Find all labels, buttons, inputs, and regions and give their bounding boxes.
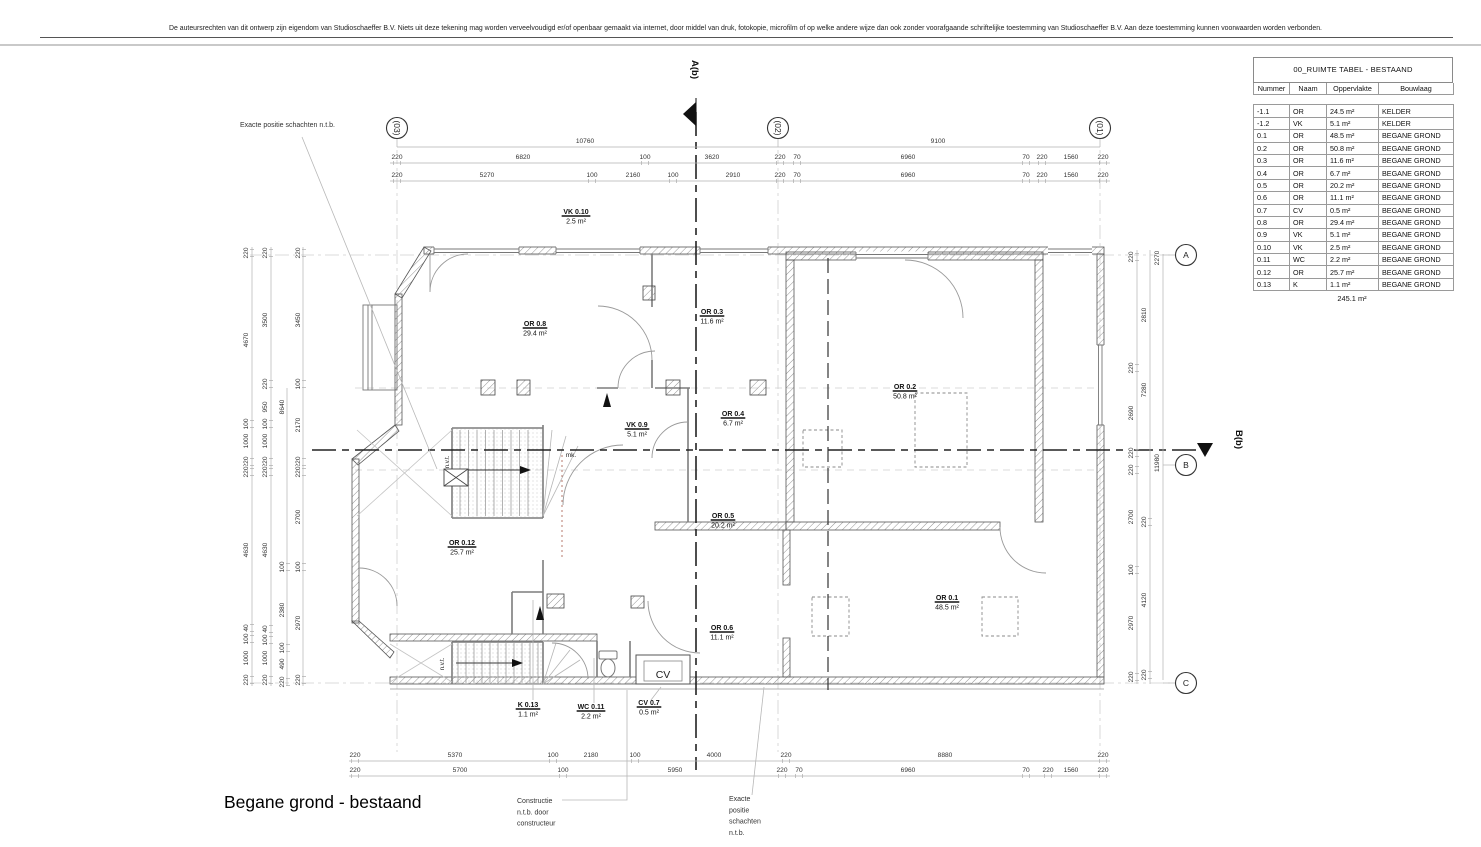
section-lines — [312, 112, 1205, 770]
annotation-line: positie — [729, 807, 749, 814]
dimension-label: 6820 — [516, 154, 531, 161]
dimension-label: 220 — [1128, 464, 1135, 475]
annotation-line: Exacte — [729, 796, 751, 803]
room-area-label: 6.7 m² — [723, 421, 744, 428]
dimension-label: 220 — [1036, 154, 1047, 161]
dimension-label: 220 — [295, 466, 302, 477]
table-cell: 0.1 — [1254, 130, 1290, 142]
table-cell: 2.2 m² — [1327, 254, 1379, 266]
table-cell: 29.4 m² — [1327, 216, 1379, 228]
table-row: 0.1OR48.5 m²BEGANE GROND — [1254, 130, 1454, 142]
table-cell: BEGANE GROND — [1379, 179, 1454, 191]
dimension-label: 220 — [262, 247, 269, 258]
windows — [363, 247, 1105, 426]
table-cell: BEGANE GROND — [1379, 130, 1454, 142]
table-cell: 0.13 — [1254, 278, 1290, 290]
column-header: Nummer — [1254, 83, 1290, 95]
dimension-label: 220 — [1128, 251, 1135, 262]
room-area-label: 2.2 m² — [581, 714, 602, 721]
dimension-label: 6960 — [901, 172, 916, 179]
table-cell: 0.9 — [1254, 229, 1290, 241]
dimension-label: 1000 — [262, 433, 269, 448]
dimension-label: 5700 — [453, 767, 468, 774]
dimension-label: 6960 — [901, 154, 916, 161]
table-row: 0.11WC2.2 m²BEGANE GROND — [1254, 254, 1454, 266]
room-name-label: K 0.13 — [518, 702, 539, 709]
table-cell: 50.8 m² — [1327, 142, 1379, 154]
table-row: 0.10VK2.5 m²BEGANE GROND — [1254, 241, 1454, 253]
dimension-label: 4670 — [243, 332, 250, 347]
dimension-label: 100 — [262, 634, 269, 645]
table-cell: 0.11 — [1254, 254, 1290, 266]
dimension-label: 2970 — [295, 615, 302, 630]
room-name-label: OR 0.6 — [711, 625, 733, 632]
dimension-label: 220 — [243, 466, 250, 477]
dimension-label: 220 — [780, 752, 791, 759]
dimension-label: 220 — [1097, 172, 1108, 179]
room-area-label: 11.1 m² — [710, 635, 734, 642]
dimension-label: 6960 — [901, 767, 916, 774]
room-name-label: OR 0.4 — [722, 411, 744, 418]
dimension-label: 5270 — [480, 172, 495, 179]
table-cell: 0.5 m² — [1327, 204, 1379, 216]
dimension-label: 220 — [391, 172, 402, 179]
grid-marker-label: (01) — [1095, 120, 1105, 135]
table-cell: BEGANE GROND — [1379, 192, 1454, 204]
dimension-label: 4000 — [707, 752, 722, 759]
dimension-label: 220 — [243, 247, 250, 258]
dimension-label: 1000 — [243, 650, 250, 665]
column-header: Oppervlakte — [1327, 83, 1379, 95]
plan-text: mk. — [566, 452, 577, 459]
table-cell: 24.5 m² — [1327, 105, 1379, 117]
dimension-label: 5950 — [668, 767, 683, 774]
plan-text: n.v.t. — [445, 455, 451, 468]
table-cell: BEGANE GROND — [1379, 241, 1454, 253]
table-cell: VK — [1290, 229, 1327, 241]
grid-lines — [250, 150, 1170, 752]
dimension-label: 70 — [1022, 154, 1030, 161]
dimension-label: 2170 — [295, 417, 302, 432]
table-cell: BEGANE GROND — [1379, 204, 1454, 216]
room-table-header: NummerNaamOppervlakteBouwlaag — [1253, 83, 1454, 95]
room-name-label: OR 0.5 — [712, 513, 734, 520]
dimension-label: 950 — [262, 401, 269, 412]
table-cell: BEGANE GROND — [1379, 154, 1454, 166]
dimension-label: 10760 — [576, 138, 595, 145]
dimension-label: 220 — [776, 767, 787, 774]
annotation-line: constructeur — [517, 821, 556, 828]
table-cell: 0.3 — [1254, 154, 1290, 166]
dimension-label: 100 — [279, 642, 286, 653]
dimension-label: 9100 — [931, 138, 946, 145]
dimension-label: 220 — [1036, 172, 1047, 179]
room-area-label: 48.5 m² — [935, 605, 959, 612]
table-cell: 0.10 — [1254, 241, 1290, 253]
grid-marker-label: A — [1183, 250, 1189, 260]
dimension-label: 100 — [667, 172, 678, 179]
table-cell: WC — [1290, 254, 1327, 266]
dimension-label: 490 — [279, 658, 286, 669]
table-cell: 0.5 — [1254, 179, 1290, 191]
dimension-label: 220 — [1128, 447, 1135, 458]
dimension-label: 100 — [557, 767, 568, 774]
dimension-label: 220 — [1128, 362, 1135, 373]
plan-text: n.v.t. — [440, 657, 446, 670]
table-cell: BEGANE GROND — [1379, 216, 1454, 228]
dimension-label: 100 — [547, 752, 558, 759]
table-cell: 0.12 — [1254, 266, 1290, 278]
room-name-label: OR 0.12 — [449, 540, 475, 547]
table-cell: -1.2 — [1254, 117, 1290, 129]
dimension-label: 4630 — [243, 542, 250, 557]
room-area-label: 50.8 m² — [893, 394, 917, 401]
table-cell: 5.1 m² — [1327, 229, 1379, 241]
room-name-label: CV 0.7 — [638, 700, 660, 707]
section-label: A(b) — [689, 60, 700, 79]
table-cell: CV — [1290, 204, 1327, 216]
room-area-label: 29.4 m² — [523, 331, 547, 338]
room-area-label: 20.2 m² — [711, 523, 735, 530]
room-table: 00_RUIMTE TABEL - BESTAAND NummerNaamOpp… — [1253, 57, 1453, 303]
dimension-label: 2160 — [626, 172, 641, 179]
table-cell: OR — [1290, 192, 1327, 204]
dimension-label: 11980 — [1154, 454, 1161, 472]
dimension-label: 220 — [1097, 154, 1108, 161]
table-cell: BEGANE GROND — [1379, 167, 1454, 179]
drawing-sheet: De auteursrechten van dit ontwerp zijn e… — [0, 0, 1481, 847]
annotation-line: Constructie — [517, 798, 553, 805]
dimension-label: 100 — [243, 633, 250, 644]
room-area-label: 11.6 m² — [700, 319, 724, 326]
dimension-label: 100 — [279, 561, 286, 572]
dimension-label: 220 — [262, 456, 269, 467]
annotation-line: n.t.b. door — [517, 809, 549, 816]
room-area-label: 0.5 m² — [639, 710, 660, 717]
winder-treads — [543, 430, 578, 516]
table-cell: BEGANE GROND — [1379, 142, 1454, 154]
dimension-label: 3450 — [295, 312, 302, 327]
dimension-label: 3620 — [705, 154, 720, 161]
dimension-label: 220 — [1128, 671, 1135, 682]
table-cell: KELDER — [1379, 117, 1454, 129]
table-cell: VK — [1290, 117, 1327, 129]
table-cell: OR — [1290, 266, 1327, 278]
dimension-label: 220 — [391, 154, 402, 161]
dimension-label: 2700 — [295, 509, 302, 524]
annotation-line: n.t.b. — [729, 830, 745, 837]
room-area-label: 2.5 m² — [566, 219, 587, 226]
table-row: 0.8OR29.4 m²BEGANE GROND — [1254, 216, 1454, 228]
room-name-label: OR 0.1 — [936, 595, 958, 602]
table-row: -1.1OR24.5 m²KELDER — [1254, 105, 1454, 117]
dimension-label: 220 — [243, 456, 250, 467]
table-cell: 1.1 m² — [1327, 278, 1379, 290]
dimension-label: 5370 — [448, 752, 463, 759]
dimension-label: 220 — [1097, 767, 1108, 774]
table-row: 0.6OR11.1 m²BEGANE GROND — [1254, 192, 1454, 204]
room-table-title: 00_RUIMTE TABEL - BESTAAND — [1253, 57, 1453, 83]
dimension-label: 100 — [295, 378, 302, 389]
void-cross — [357, 430, 452, 682]
dimension-label: 220 — [1042, 767, 1053, 774]
table-cell: BEGANE GROND — [1379, 278, 1454, 290]
table-cell: 25.7 m² — [1327, 266, 1379, 278]
table-cell: 6.7 m² — [1327, 167, 1379, 179]
table-cell: OR — [1290, 179, 1327, 191]
room-name-label: WC 0.11 — [578, 704, 605, 711]
table-cell: 0.8 — [1254, 216, 1290, 228]
table-row: 0.3OR11.6 m²BEGANE GROND — [1254, 154, 1454, 166]
dimension-label: 1560 — [1064, 154, 1079, 161]
dimension-label: 2970 — [1128, 615, 1135, 630]
room-name-label: OR 0.3 — [701, 309, 723, 316]
drawing-title: Begane grond - bestaand — [224, 792, 422, 813]
dimension-label: 70 — [793, 172, 801, 179]
dimension-label: 1560 — [1064, 767, 1079, 774]
dimension-label: 1000 — [243, 433, 250, 448]
dimension-label: 220 — [349, 752, 360, 759]
dimension-label: 40 — [243, 624, 250, 632]
table-row: 0.13K1.1 m²BEGANE GROND — [1254, 278, 1454, 290]
table-cell: 0.2 — [1254, 142, 1290, 154]
table-row: 0.9VK5.1 m²BEGANE GROND — [1254, 229, 1454, 241]
room-name-label: OR 0.2 — [894, 384, 916, 391]
dimension-label: 220 — [243, 674, 250, 685]
table-cell: OR — [1290, 130, 1327, 142]
table-cell: OR — [1290, 216, 1327, 228]
dimension-label: 100 — [262, 418, 269, 429]
column-header: Bouwlaag — [1379, 83, 1454, 95]
table-cell: OR — [1290, 167, 1327, 179]
table-row: 0.2OR50.8 m²BEGANE GROND — [1254, 142, 1454, 154]
table-cell: -1.1 — [1254, 105, 1290, 117]
table-cell: 0.6 — [1254, 192, 1290, 204]
column-header: Naam — [1290, 83, 1327, 95]
toilet-symbol — [599, 651, 617, 677]
dimension-label: 100 — [243, 418, 250, 429]
room-name-label: VK 0.9 — [626, 422, 648, 429]
table-cell: 48.5 m² — [1327, 130, 1379, 142]
table-cell: OR — [1290, 142, 1327, 154]
dimension-label: 220 — [295, 674, 302, 685]
dimension-label: 2690 — [1128, 405, 1135, 420]
grid-marker-label: (03) — [392, 120, 402, 135]
dimension-label: 220 — [774, 154, 785, 161]
room-name-label: OR 0.8 — [524, 321, 546, 328]
dimension-label: 70 — [1022, 172, 1030, 179]
dimension-label: 3500 — [262, 312, 269, 327]
dimension-label: 1560 — [1064, 172, 1079, 179]
header-row: NummerNaamOppervlakteBouwlaag — [1254, 83, 1454, 95]
grid-marker-label: B — [1183, 460, 1189, 470]
dimension-label: 220 — [279, 676, 286, 687]
section-label: B(b) — [1233, 430, 1244, 449]
dimension-label: 220 — [349, 767, 360, 774]
dimension-label: 40 — [262, 625, 269, 633]
table-cell: 5.1 m² — [1327, 117, 1379, 129]
dimension-label: 70 — [795, 767, 803, 774]
table-cell: BEGANE GROND — [1379, 254, 1454, 266]
dimension-label: 70 — [793, 154, 801, 161]
dimension-label: 100 — [1128, 564, 1135, 575]
dimension-label: 2270 — [1154, 250, 1161, 265]
table-cell: 11.1 m² — [1327, 192, 1379, 204]
dimension-label: 8640 — [279, 399, 286, 414]
dimension-label: 7280 — [1141, 382, 1148, 397]
dimension-label: 220 — [774, 172, 785, 179]
room-table-total: 245.1 m² — [1319, 294, 1385, 303]
table-row: 0.7CV0.5 m²BEGANE GROND — [1254, 204, 1454, 216]
table-cell: VK — [1290, 241, 1327, 253]
grid-marker-label: C — [1183, 678, 1189, 688]
table-cell: BEGANE GROND — [1379, 266, 1454, 278]
table-cell: OR — [1290, 154, 1327, 166]
room-area-label: 1.1 m² — [518, 712, 539, 719]
dimension-label: 220 — [295, 456, 302, 467]
table-row: -1.2VK5.1 m²KELDER — [1254, 117, 1454, 129]
dimension-label: 100 — [295, 561, 302, 572]
room-area-label: 5.1 m² — [627, 432, 648, 439]
dimension-label: 220 — [1097, 752, 1108, 759]
table-cell: 11.6 m² — [1327, 154, 1379, 166]
dimension-label: 70 — [1022, 767, 1030, 774]
dimension-label: 2380 — [279, 602, 286, 617]
table-row: 0.4OR6.7 m²BEGANE GROND — [1254, 167, 1454, 179]
direction-arrow-icon — [536, 393, 611, 620]
room-name-label: VK 0.10 — [563, 209, 588, 216]
dimension-label: 4120 — [1141, 592, 1148, 607]
dimension-label: 100 — [586, 172, 597, 179]
table-cell: 0.4 — [1254, 167, 1290, 179]
dimension-label: 220 — [262, 466, 269, 477]
table-cell: OR — [1290, 105, 1327, 117]
dimension-label: 1000 — [262, 650, 269, 665]
table-cell: 0.7 — [1254, 204, 1290, 216]
table-cell: 20.2 m² — [1327, 179, 1379, 191]
dimension-label: 2910 — [726, 172, 741, 179]
table-cell: 2.5 m² — [1327, 241, 1379, 253]
section-arrow-icons — [683, 98, 1213, 457]
dimension-label: 100 — [629, 752, 640, 759]
dimension-label: 220 — [1141, 516, 1148, 527]
dimension-label: 2700 — [1128, 509, 1135, 524]
table-row: 0.12OR25.7 m²BEGANE GROND — [1254, 266, 1454, 278]
dimension-label: 4630 — [262, 542, 269, 557]
table-row: 0.5OR20.2 m²BEGANE GROND — [1254, 179, 1454, 191]
dimension-label: 2180 — [584, 752, 599, 759]
table-cell: KELDER — [1379, 105, 1454, 117]
table-cell: BEGANE GROND — [1379, 229, 1454, 241]
dimension-label: 220 — [262, 674, 269, 685]
plan-text: CV — [656, 669, 671, 681]
dimension-label: 100 — [639, 154, 650, 161]
dimension-label: 2810 — [1141, 307, 1148, 322]
annotation-line: Exacte positie schachten n.t.b. — [240, 122, 335, 129]
dimension-label: 8880 — [938, 752, 953, 759]
table-cell: K — [1290, 278, 1327, 290]
grid-marker-label: (02) — [773, 120, 783, 135]
dimension-label: 220 — [295, 247, 302, 258]
dimension-label: 220 — [1141, 669, 1148, 680]
room-area-label: 25.7 m² — [450, 550, 474, 557]
dimension-label: 220 — [262, 378, 269, 389]
annotation-line: schachten — [729, 819, 761, 826]
room-table-body: -1.1OR24.5 m²KELDER-1.2VK5.1 m²KELDER0.1… — [1253, 104, 1454, 291]
